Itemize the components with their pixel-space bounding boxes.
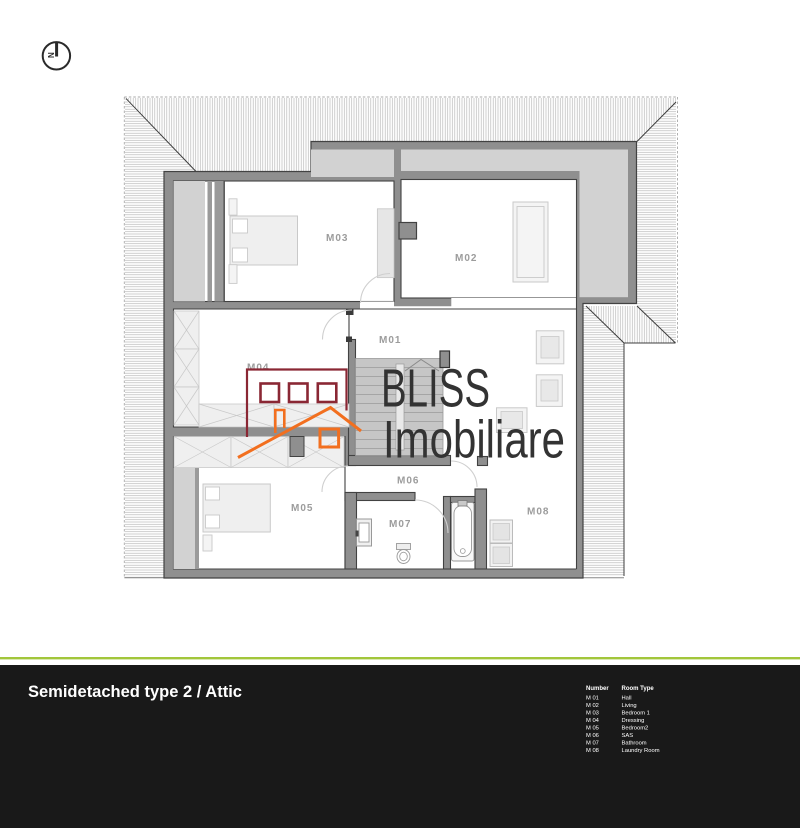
svg-text:Dressing: Dressing <box>622 718 645 724</box>
svg-text:M 04: M 04 <box>586 718 600 724</box>
svg-text:Laundry Room: Laundry Room <box>622 748 660 754</box>
svg-text:M 01: M 01 <box>586 696 599 702</box>
svg-text:SAS: SAS <box>622 733 634 739</box>
svg-text:M 07: M 07 <box>586 741 599 747</box>
svg-text:M01: M01 <box>379 335 401 346</box>
svg-text:M07: M07 <box>389 519 411 530</box>
svg-text:M03: M03 <box>326 233 348 244</box>
svg-text:Bedroom 1: Bedroom 1 <box>622 711 650 717</box>
svg-text:M04: M04 <box>247 363 269 374</box>
svg-text:Bedroom2: Bedroom2 <box>622 726 649 732</box>
svg-text:M 02: M 02 <box>586 703 599 709</box>
svg-text:Hall: Hall <box>622 696 632 702</box>
svg-text:M02: M02 <box>455 253 477 264</box>
svg-text:Room Type: Room Type <box>622 686 655 692</box>
svg-text:Living: Living <box>622 703 637 709</box>
svg-text:Number: Number <box>586 686 609 692</box>
svg-text:Bathroom: Bathroom <box>622 741 647 747</box>
svg-text:M 05: M 05 <box>586 726 599 732</box>
svg-text:M06: M06 <box>397 476 419 487</box>
svg-text:M 06: M 06 <box>586 733 599 739</box>
svg-text:BLISS: BLISS <box>381 359 490 419</box>
svg-text:M 03: M 03 <box>586 711 599 717</box>
svg-text:Imobiliare: Imobiliare <box>383 411 565 470</box>
svg-text:M 08: M 08 <box>586 748 599 754</box>
svg-text:Semidetached type 2 / Attic: Semidetached type 2 / Attic <box>28 683 242 701</box>
svg-text:M08: M08 <box>527 507 549 518</box>
svg-text:N: N <box>47 52 56 58</box>
svg-text:M05: M05 <box>291 503 313 514</box>
